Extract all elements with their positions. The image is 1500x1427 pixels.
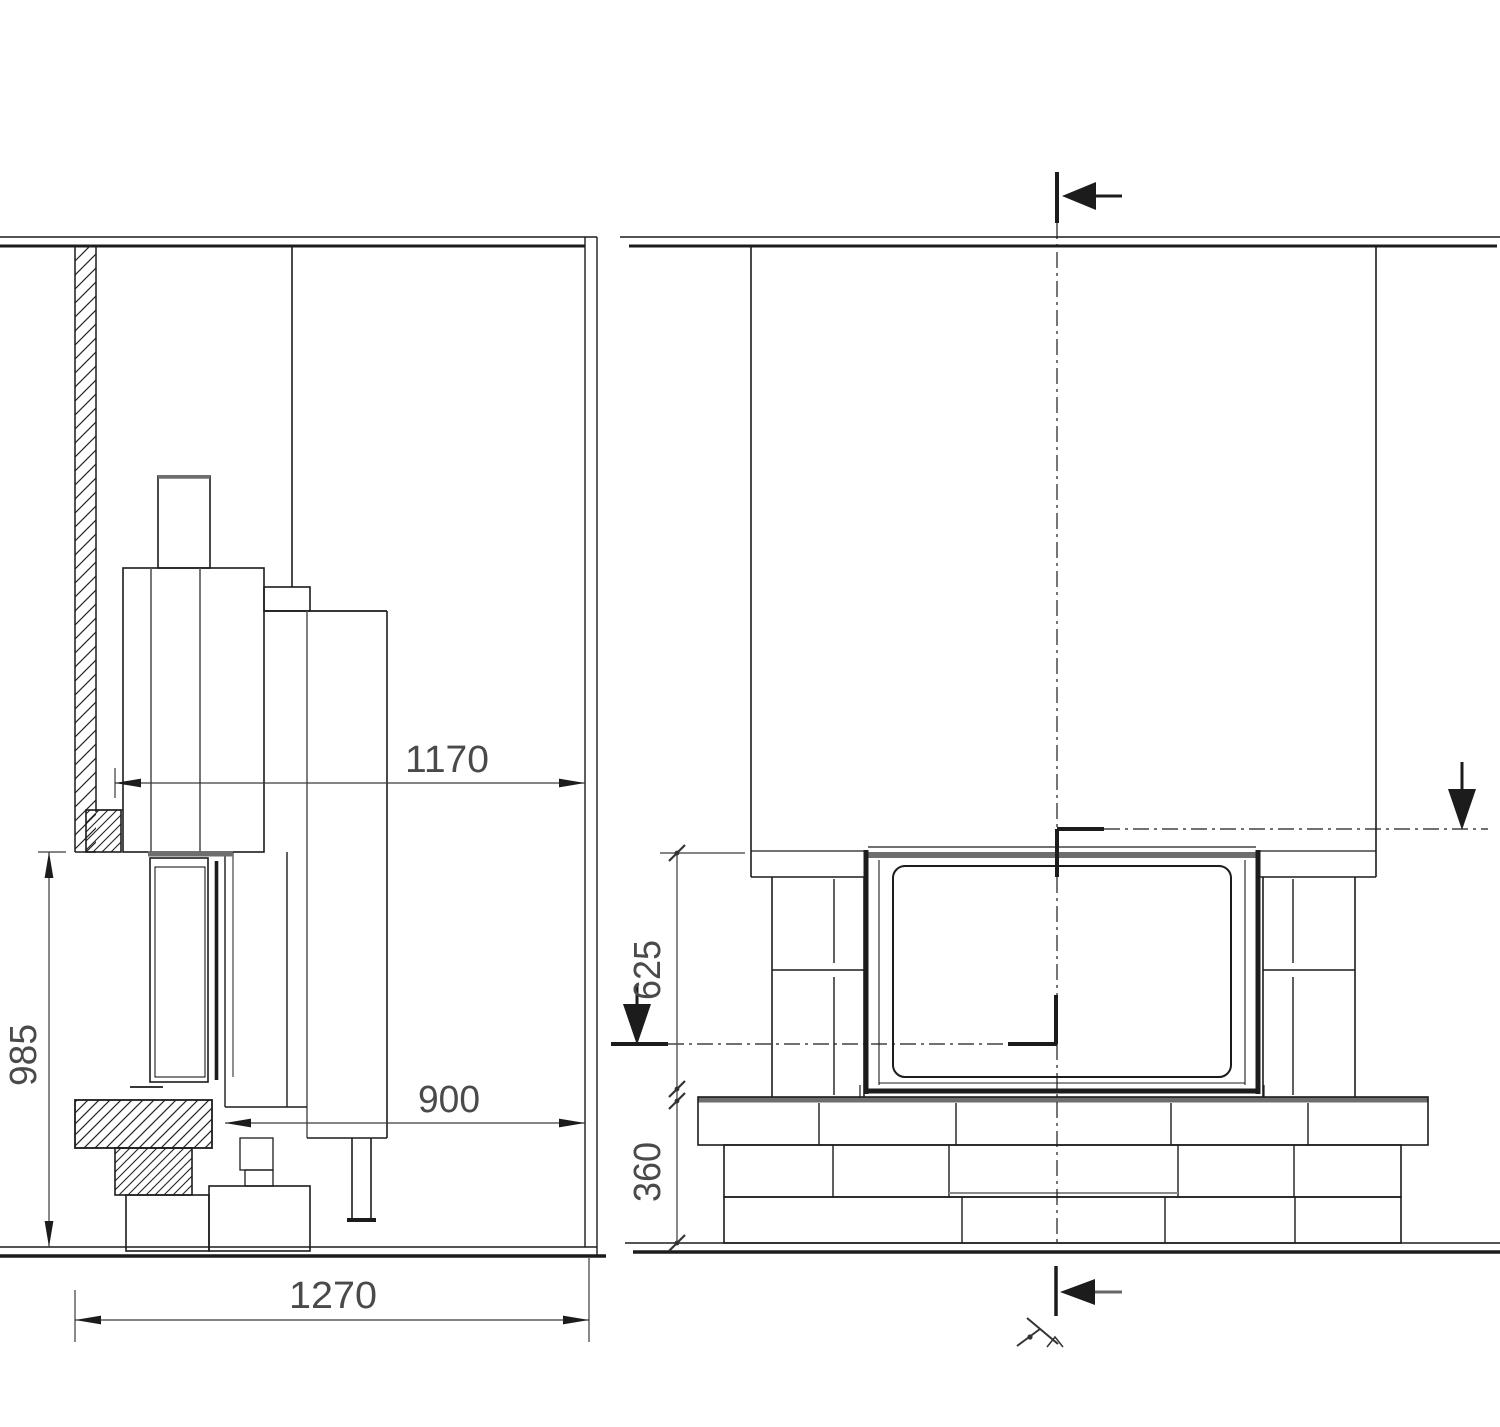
- door-section: [130, 854, 233, 1087]
- front-ceiling: [620, 237, 1500, 246]
- right-pillar: [1263, 877, 1355, 1097]
- section-arrow-bottom-icon: [1056, 1266, 1122, 1316]
- dim-label-360: 360: [627, 1142, 669, 1202]
- mantel-blocks: [75, 1100, 212, 1195]
- drawing-canvas: 1170 900 985 1270: [0, 0, 1500, 1427]
- arrow-left-icon: [115, 779, 141, 788]
- front-elevation-view: 625 360: [611, 172, 1500, 1347]
- firebox-internals: [225, 852, 307, 1107]
- arrow-right-icon: [563, 1316, 589, 1325]
- section-arrow-top-icon: [1062, 182, 1122, 210]
- support-leg: [347, 1138, 376, 1220]
- rear-wall-section: [75, 245, 96, 852]
- section-arrow-right-icon: [1448, 762, 1476, 830]
- chimney-breast: [751, 246, 1376, 877]
- arrow-left-icon: [75, 1316, 101, 1325]
- dim-label-625: 625: [627, 940, 669, 1000]
- insert-glass: [893, 866, 1231, 1077]
- dim-label-985: 985: [3, 1024, 45, 1086]
- dim-height-opening: 985: [3, 852, 66, 1247]
- dim-label-1170: 1170: [405, 739, 489, 781]
- revision-mark-icon: [1017, 1318, 1063, 1347]
- arrow-up-icon: [45, 852, 54, 878]
- dim-depth-total: 1270: [75, 1258, 589, 1342]
- side-ceiling: [0, 237, 597, 246]
- dim-label-900: 900: [418, 1079, 480, 1121]
- section-line-vertical: [1008, 172, 1104, 1243]
- insert-front: [860, 847, 1264, 1097]
- arrow-down-icon: [45, 1221, 54, 1247]
- hearth-masonry: [698, 1097, 1428, 1243]
- arrow-right-icon: [559, 779, 585, 788]
- dim-depth-front-to-wall: 1170: [115, 739, 585, 798]
- drawing-page: 1170 900 985 1270: [0, 0, 1500, 1427]
- arrow-right-icon: [559, 1119, 585, 1128]
- arrow-left-icon: [225, 1119, 251, 1128]
- stove-body: [123, 476, 387, 1138]
- side-right-boundary: [585, 237, 597, 1255]
- dim-front-heights: 625 360: [627, 845, 745, 1251]
- front-floor: [625, 1243, 1500, 1252]
- dim-depth-insert: 900: [225, 1079, 585, 1127]
- left-pillar: [772, 877, 864, 1097]
- section-line-horizontal: [611, 829, 1488, 1044]
- dim-label-1270: 1270: [289, 1275, 377, 1317]
- wall-lintel-block: [86, 810, 123, 852]
- side-section-view: 1170 900 985 1270: [0, 237, 606, 1342]
